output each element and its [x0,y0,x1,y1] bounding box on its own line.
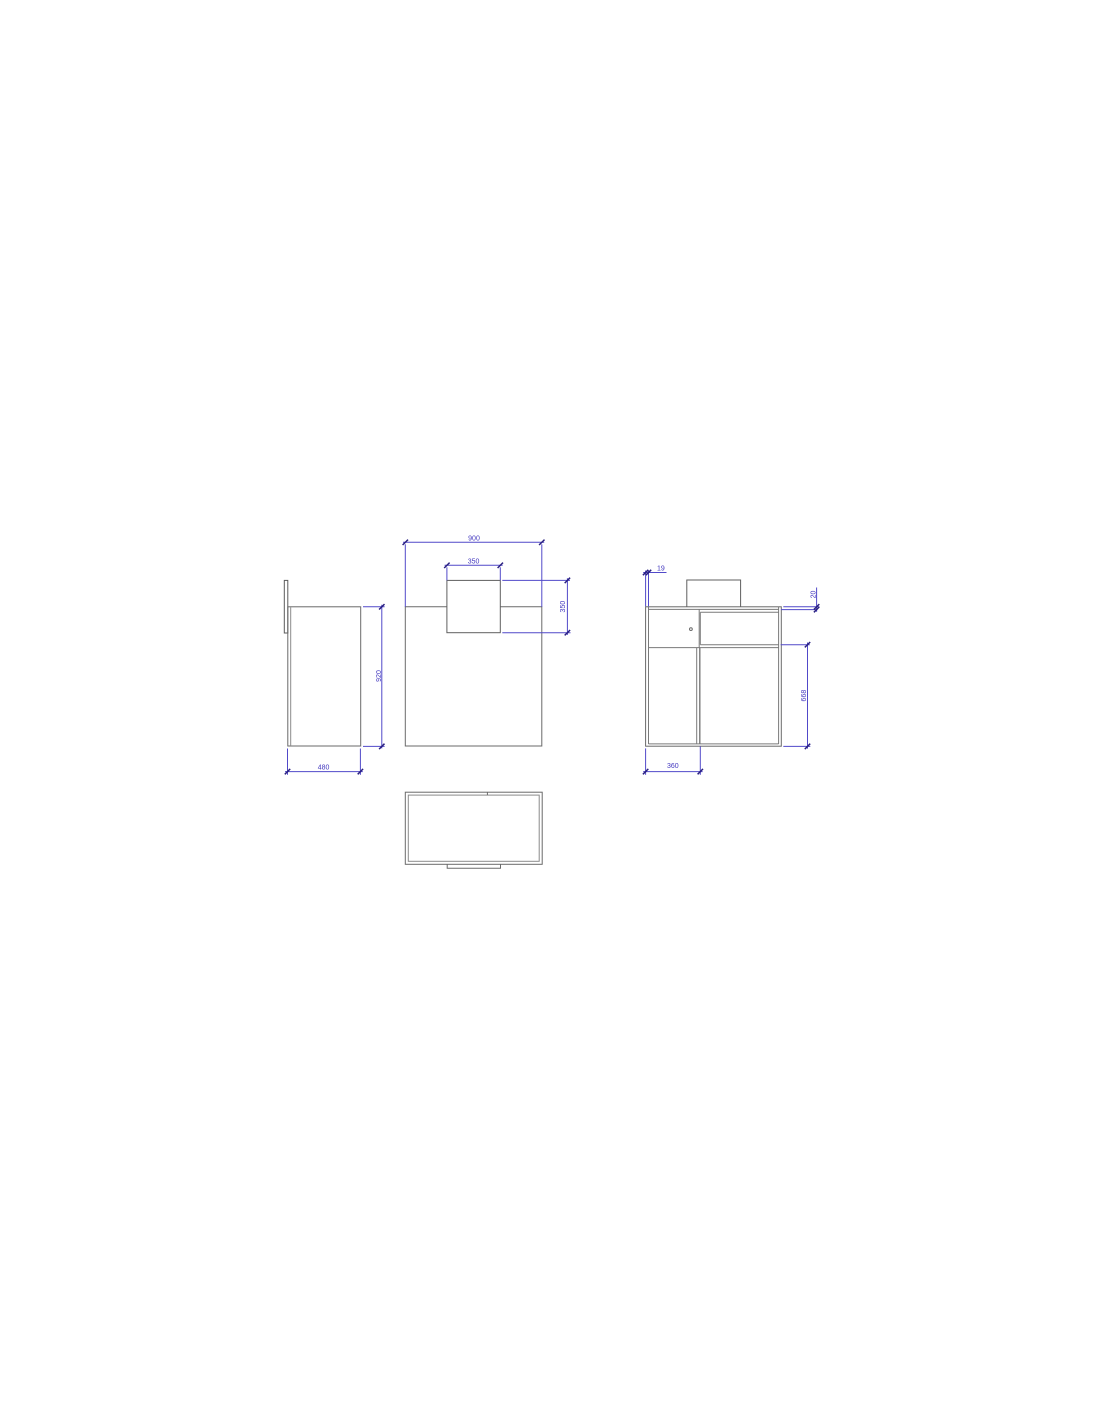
svg-text:668: 668 [801,690,808,702]
svg-text:920: 920 [376,670,383,682]
svg-text:360: 360 [667,763,679,770]
svg-text:350: 350 [468,558,480,565]
svg-text:900: 900 [468,535,480,542]
svg-text:350: 350 [560,601,567,613]
svg-text:480: 480 [318,765,330,772]
svg-text:19: 19 [657,566,665,573]
svg-text:20: 20 [810,591,817,599]
